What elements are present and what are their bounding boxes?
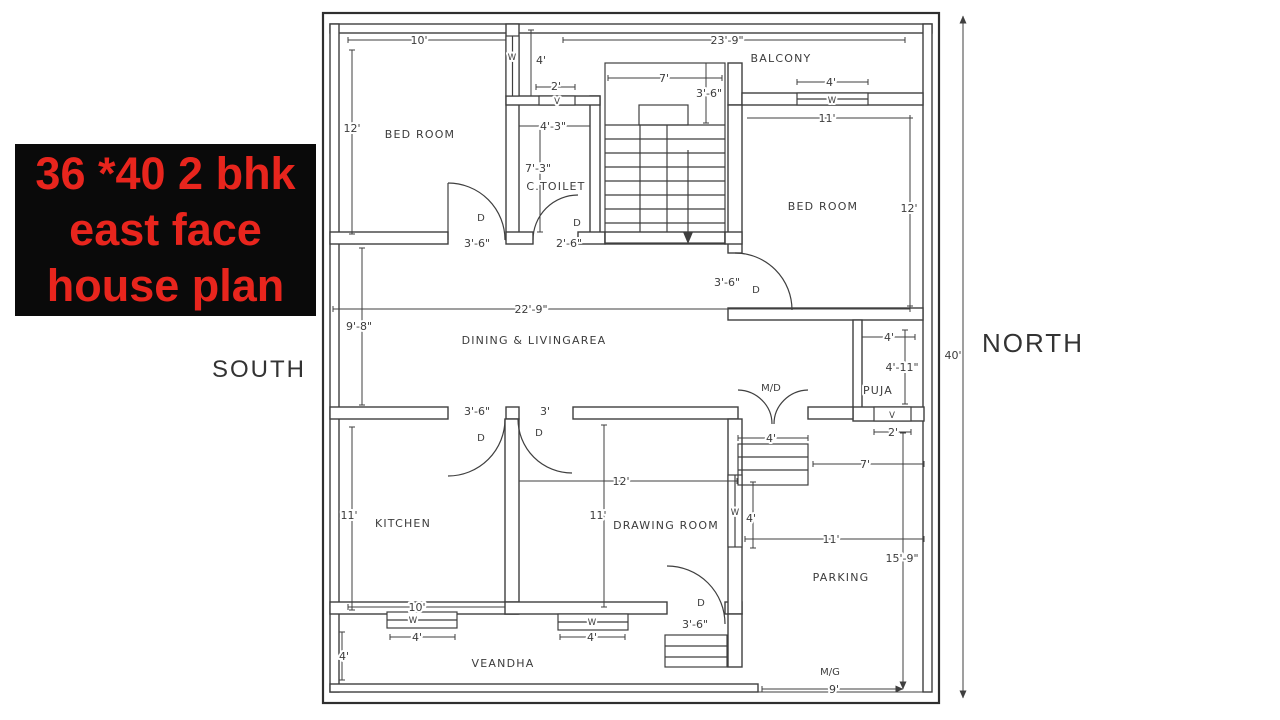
dim-dining-height: 9'-8" <box>346 320 372 333</box>
vent-label-puja: V <box>889 411 895 421</box>
dim-bedroom1-height: 12' <box>343 122 360 135</box>
wall-dining-south-4 <box>808 407 853 419</box>
room-label-balcony: BALCONY <box>751 52 812 65</box>
wall-stairs-east-stub <box>728 63 742 105</box>
sheet-border <box>323 13 939 703</box>
dim-bedroom2-height: 12' <box>900 202 917 215</box>
room-label-kitchen: KITCHEN <box>375 517 431 530</box>
wall-puja-west <box>853 320 862 408</box>
door-label-bedroom1: D <box>477 213 485 224</box>
dim-overall-height: 40' <box>944 349 961 362</box>
room-label-drawing-room: DRAWING ROOM <box>613 519 719 532</box>
labels: BED ROOMC.TOILETBALCONYBED ROOMDINING & … <box>339 34 962 696</box>
dim-dining-width: 22'-9" <box>514 303 547 316</box>
door-arc-kitchen <box>448 419 505 476</box>
dim-drawing-veranda-window: 4' <box>587 631 597 644</box>
wall-bedroom2-west <box>728 105 742 253</box>
dim-kitchen-door: 3'-6" <box>464 405 490 418</box>
compass-north-label: NORTH <box>982 328 1084 359</box>
dim-drawing-height: 11' <box>589 509 606 522</box>
room-label-parking: PARKING <box>813 571 870 584</box>
dim-main-door: 4' <box>766 432 776 445</box>
dim-parking-width: 11' <box>822 533 839 546</box>
vent-label-toilet: V <box>554 97 560 107</box>
floor-plan-svg: BED ROOMC.TOILETBALCONYBED ROOMDINING & … <box>0 0 1280 720</box>
window-label-drawing: W <box>731 508 740 518</box>
dim-bedroom1-width: 10' <box>410 34 427 47</box>
wall-dining-north-1 <box>330 232 448 244</box>
floor-plan-page: BED ROOMC.TOILETBALCONYBED ROOMDINING & … <box>0 0 1280 720</box>
door-label-kitchen: D <box>477 433 485 444</box>
wall-dining-north-2 <box>506 232 533 244</box>
door-arc-bedroom1 <box>448 183 505 240</box>
title-line-2: east face <box>15 202 316 258</box>
window-label-drawing2: W <box>588 618 597 628</box>
wall-north <box>330 24 932 33</box>
dim-toilet-door: 2'-6" <box>556 237 582 250</box>
dim-kitchen-height: 11' <box>340 509 357 522</box>
compass-south-label: SOUTH <box>212 356 306 384</box>
wall-dining-north-4 <box>605 232 725 244</box>
window-label-passage: W <box>508 53 517 63</box>
dim-toilet-height: 7'-3" <box>525 162 551 175</box>
dim-puja-height: 4'-11" <box>885 361 918 374</box>
exit-steps <box>665 635 727 667</box>
entry-steps <box>738 444 808 485</box>
entry-steps-outline <box>738 444 808 485</box>
wall-south-verandah <box>330 684 758 692</box>
room-label-dining-living: DINING & LIVINGAREA <box>462 334 607 347</box>
dim-bedroom2-width: 11' <box>818 112 835 125</box>
title-line-3: house plan <box>15 258 316 314</box>
window-label-balcony: W <box>828 96 837 106</box>
wall-dining-south-2 <box>506 407 519 419</box>
wall-toilet-east <box>590 96 600 240</box>
wall-dining-north-5 <box>725 232 742 244</box>
wall-drawing-south-1 <box>505 602 667 614</box>
main-door-arc-left <box>738 390 772 424</box>
dim-puja-width: 4' <box>884 331 894 344</box>
wall-kitchen-drawing <box>505 419 519 614</box>
title-card: 36 *40 2 bhk east face house plan <box>15 144 316 316</box>
main-door-label: M/D <box>761 383 781 394</box>
dim-stairs-landing: 3'-6" <box>696 87 722 100</box>
wall-dining-south-3 <box>573 407 738 419</box>
dim-drawing-width: 12' <box>612 475 629 488</box>
room-label-verandah: VEANDHA <box>472 657 535 670</box>
wall-bedroom2-south <box>728 308 923 320</box>
door-label-toilet: D <box>573 218 581 229</box>
dimension-lines <box>333 16 963 698</box>
dim-stairs-width: 7' <box>659 72 669 85</box>
wall-west <box>330 24 339 692</box>
wall-drawing-east-ext <box>728 614 742 667</box>
window-label-kitchen: W <box>409 616 418 626</box>
main-gate-label: M/G <box>820 667 840 678</box>
dim-kitchen-veranda-window: 4' <box>412 631 422 644</box>
door-arc-drawing <box>518 419 572 473</box>
wall-east <box>923 24 932 692</box>
door-label-drawing-exit: D <box>697 598 705 609</box>
room-label-ctoilet: C.TOILET <box>526 180 585 193</box>
door-arc-bedroom2 <box>735 253 792 310</box>
wall-dining-south-1 <box>330 407 448 419</box>
dim-parking-height: 15'-9" <box>885 552 918 565</box>
doors <box>448 183 808 624</box>
dim-parking-top: 7' <box>860 458 870 471</box>
stairs-landing <box>639 105 688 125</box>
title-line-1: 36 *40 2 bhk <box>15 146 316 202</box>
dim-bedroom2-door: 3'-6" <box>714 276 740 289</box>
dim-main-gate: 9' <box>829 683 839 696</box>
dim-bedroom1-door: 3'-6" <box>464 237 490 250</box>
dim-kitchen-width: 10' <box>408 601 425 614</box>
dim-vent2-width: 2' <box>888 426 898 439</box>
wall-dining-north-3 <box>578 232 605 244</box>
dim-vent1-width: 2' <box>551 80 561 93</box>
dim-drawing-exit-door: 3'-6" <box>682 618 708 631</box>
door-label-bedroom2: D <box>752 285 760 296</box>
exit-steps-outline <box>665 635 727 667</box>
dim-balcony-window: 4' <box>826 76 836 89</box>
room-label-puja: PUJA <box>863 384 893 397</box>
door-arc-drawing-exit <box>667 566 725 624</box>
room-label-bedroom-1: BED ROOM <box>385 128 456 141</box>
room-label-bedroom-2: BED ROOM <box>788 200 859 213</box>
dim-verandah-height: 4' <box>339 650 349 663</box>
dim-toilet-width: 4'-3" <box>540 120 566 133</box>
main-door-arc-right <box>774 390 808 424</box>
door-label-drawing: D <box>535 428 543 439</box>
outer-walls <box>330 24 932 692</box>
dim-passage-height: 4' <box>536 54 546 67</box>
dim-drawing-window: 4' <box>746 512 756 525</box>
dim-drawing-door: 3' <box>540 405 550 418</box>
dim-overall-top: 23'-9" <box>710 34 743 47</box>
